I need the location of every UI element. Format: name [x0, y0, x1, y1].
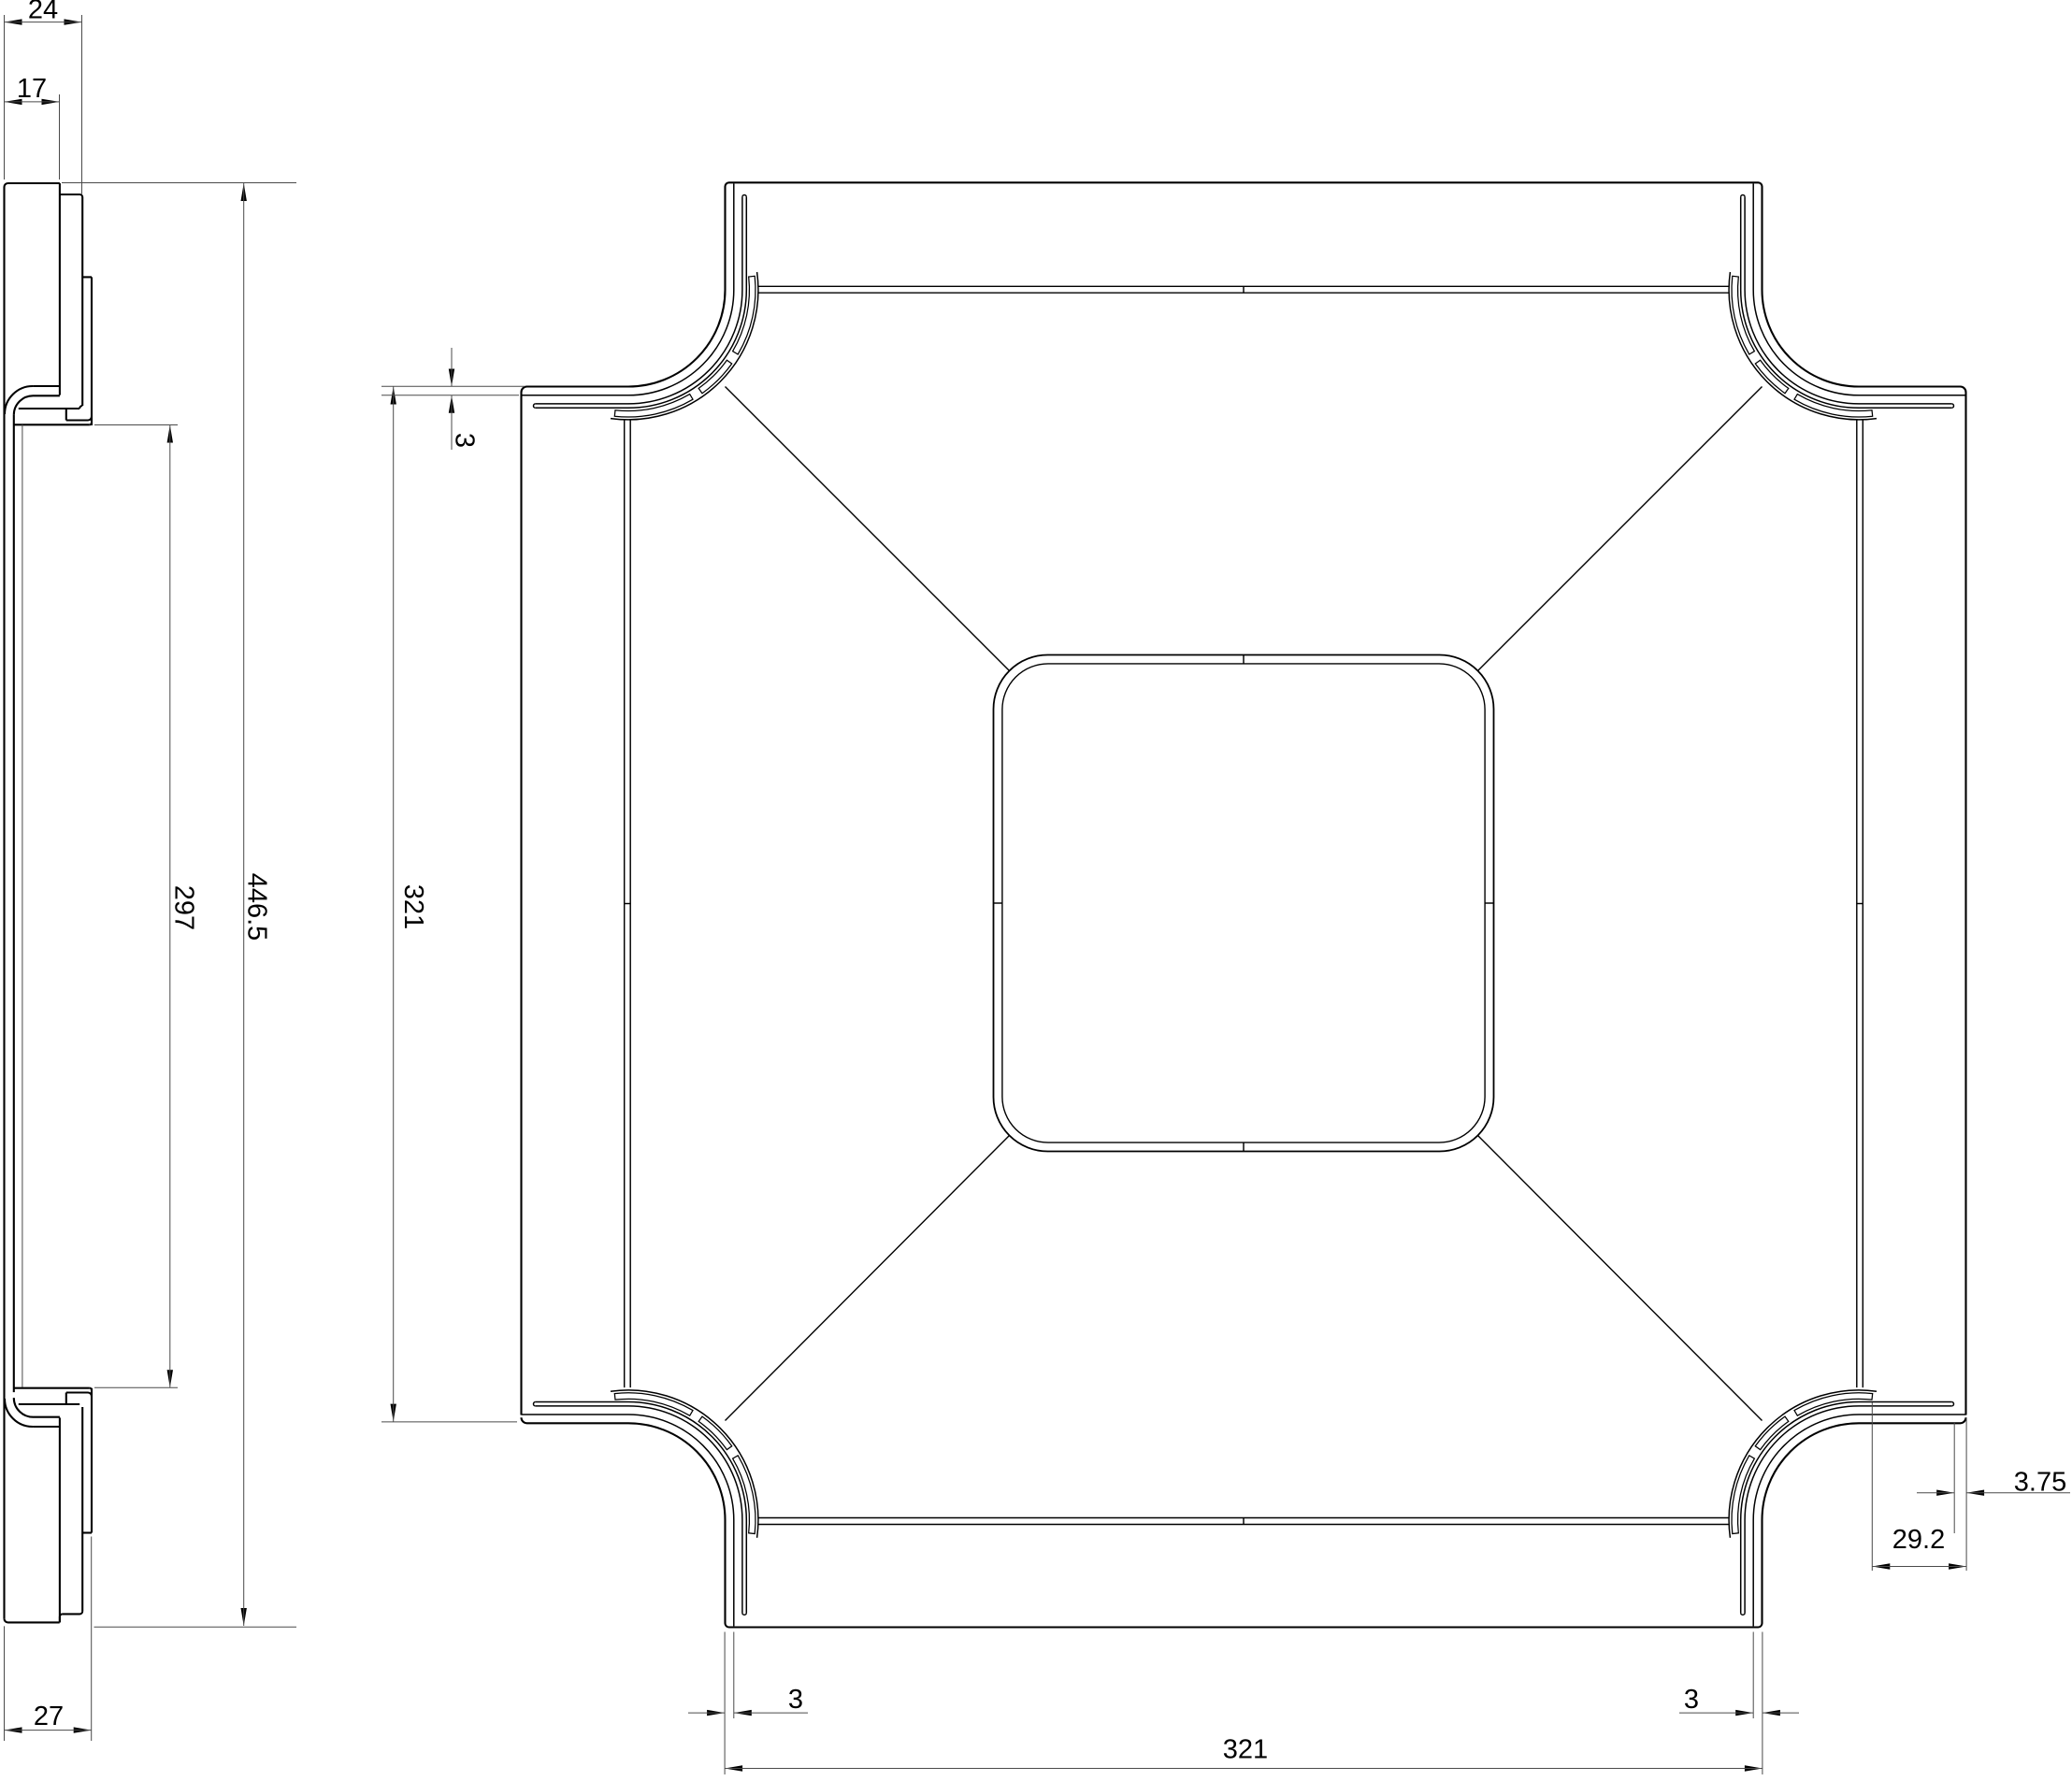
svg-text:27: 27	[34, 1702, 64, 1731]
svg-text:29.2: 29.2	[1892, 1525, 1945, 1555]
svg-text:24: 24	[28, 0, 58, 25]
svg-text:17: 17	[17, 74, 47, 104]
svg-text:3: 3	[1684, 1685, 1699, 1715]
svg-text:3: 3	[450, 433, 480, 448]
svg-text:446.5: 446.5	[242, 873, 272, 941]
svg-text:3: 3	[788, 1685, 803, 1715]
svg-text:321: 321	[398, 884, 428, 929]
svg-text:321: 321	[1223, 1735, 1268, 1765]
svg-text:297: 297	[169, 885, 199, 930]
